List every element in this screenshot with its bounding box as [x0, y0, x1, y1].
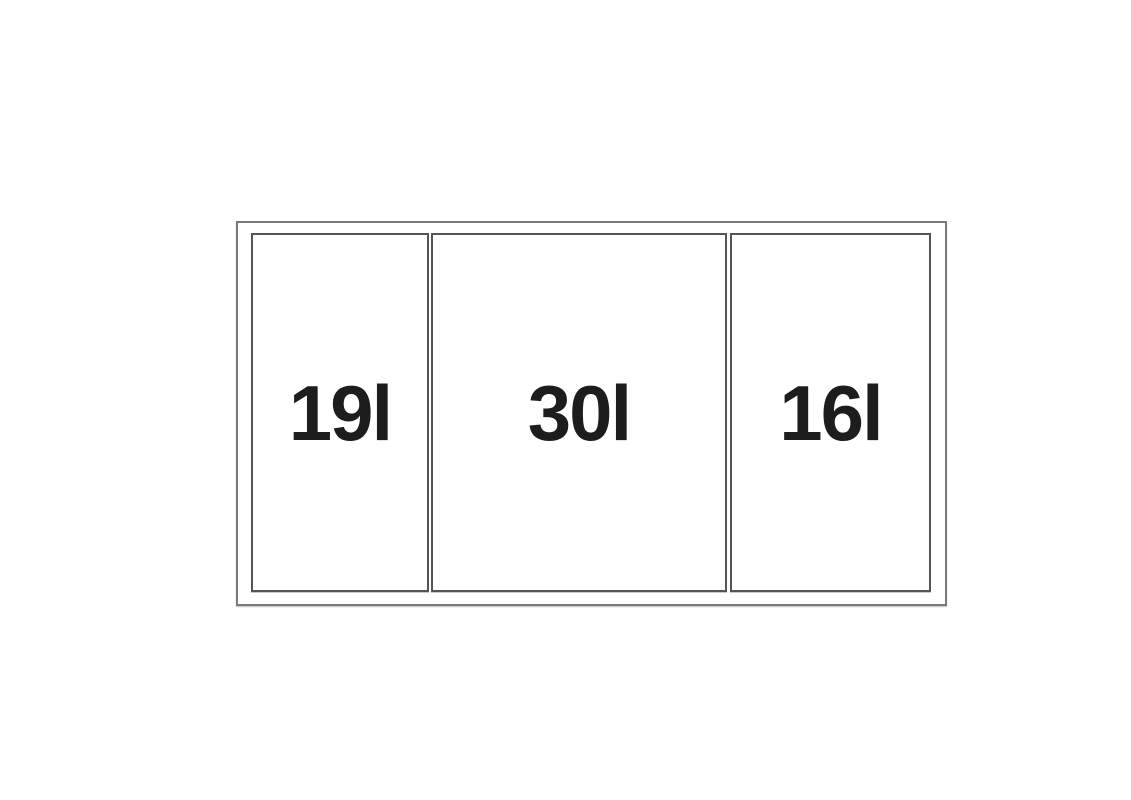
drawer-outer-frame: 19l 30l 16l	[236, 221, 947, 606]
capacity-label-16l: 16l	[779, 374, 881, 452]
compartment-30l: 30l	[431, 233, 727, 592]
capacity-label-30l: 30l	[528, 374, 630, 452]
compartment-19l: 19l	[251, 233, 429, 592]
capacity-label-19l: 19l	[289, 374, 391, 452]
compartment-16l: 16l	[730, 233, 931, 592]
